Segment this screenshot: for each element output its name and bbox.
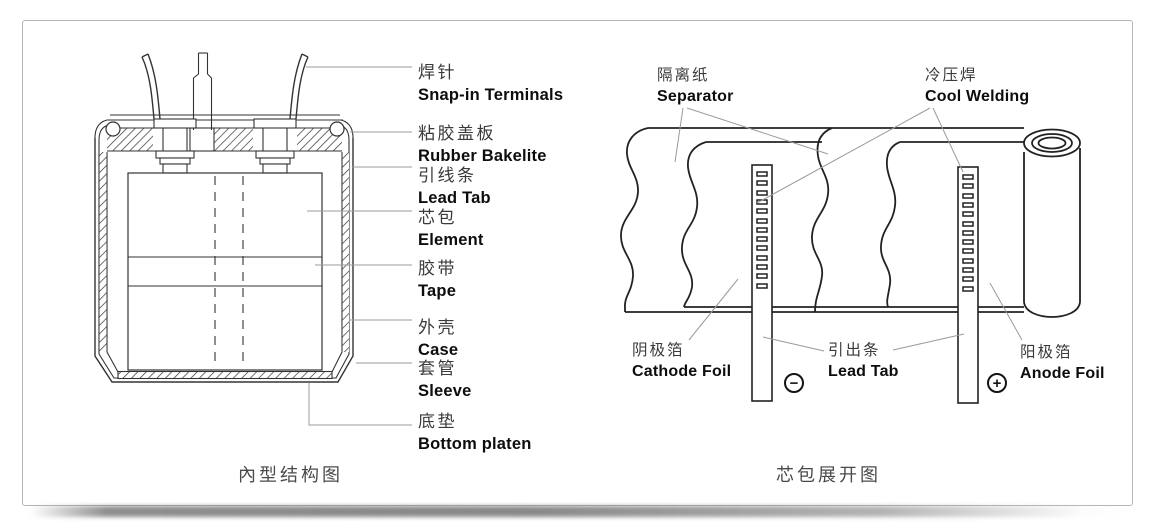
label-zh: 引线条 [418, 165, 491, 187]
label-sleeve: 套管 Sleeve [418, 358, 472, 402]
negative-polarity-badge: − [784, 373, 804, 393]
label-zh: 隔离纸 [657, 65, 734, 86]
right-diagram-caption: 芯包展开图 [776, 461, 881, 487]
label-en: Cool Welding [925, 86, 1029, 107]
snap-in-terminal-pins [142, 54, 308, 119]
label-zh: 阳极箔 [1020, 342, 1105, 363]
label-zh: 阴极箔 [632, 340, 731, 361]
label-en: Snap-in Terminals [418, 84, 563, 106]
label-zh: 胶带 [418, 258, 457, 280]
label-rubber-bakelite: 粘胶盖板 Rubber Bakelite [418, 123, 547, 167]
rolled-element [1024, 130, 1080, 318]
label-lead-tab-out: 引出条 Lead Tab [828, 340, 899, 382]
label-separator: 隔离纸 Separator [657, 65, 734, 107]
label-zh: 外壳 [418, 317, 458, 339]
label-bottom-platen: 底垫 Bottom platen [418, 411, 532, 455]
label-zh: 焊针 [418, 62, 563, 84]
label-zh: 芯包 [418, 207, 484, 229]
label-snap-in-terminals: 焊针 Snap-in Terminals [418, 62, 563, 106]
positive-polarity-badge: + [987, 373, 1007, 393]
label-en: Lead Tab [418, 187, 491, 209]
label-en: Anode Foil [1020, 363, 1105, 384]
label-en: Element [418, 229, 484, 251]
capacitor-cross-section [95, 53, 353, 382]
panel-bottom-shadow [30, 506, 1126, 517]
label-zh: 引出条 [828, 340, 899, 361]
left-diagram-caption: 內型结构图 [238, 461, 343, 487]
label-en: Sleeve [418, 380, 472, 402]
label-zh: 底垫 [418, 411, 532, 433]
label-en: Rubber Bakelite [418, 145, 547, 167]
element-body [128, 173, 322, 370]
label-en: Separator [657, 86, 734, 107]
label-element: 芯包 Element [418, 207, 484, 251]
label-cool-welding: 冷压焊 Cool Welding [925, 65, 1029, 107]
label-case: 外壳 Case [418, 317, 458, 361]
label-en: Tape [418, 280, 457, 302]
label-zh: 套管 [418, 358, 472, 380]
label-tape: 胶带 Tape [418, 258, 457, 302]
label-en: Lead Tab [828, 361, 899, 382]
label-zh: 冷压焊 [925, 65, 1029, 86]
label-en: Bottom platen [418, 433, 532, 455]
label-lead-tab: 引线条 Lead Tab [418, 165, 491, 209]
label-zh: 粘胶盖板 [418, 123, 547, 145]
cold-weld-stitches [757, 172, 973, 291]
label-anode-foil: 阳极箔 Anode Foil [1020, 342, 1105, 384]
label-en: Cathode Foil [632, 361, 731, 382]
screenshot-root: { "page": { "background": "#ffffff", "pa… [0, 0, 1158, 532]
center-pin [190, 53, 214, 151]
label-cathode-foil: 阴极箔 Cathode Foil [632, 340, 731, 382]
